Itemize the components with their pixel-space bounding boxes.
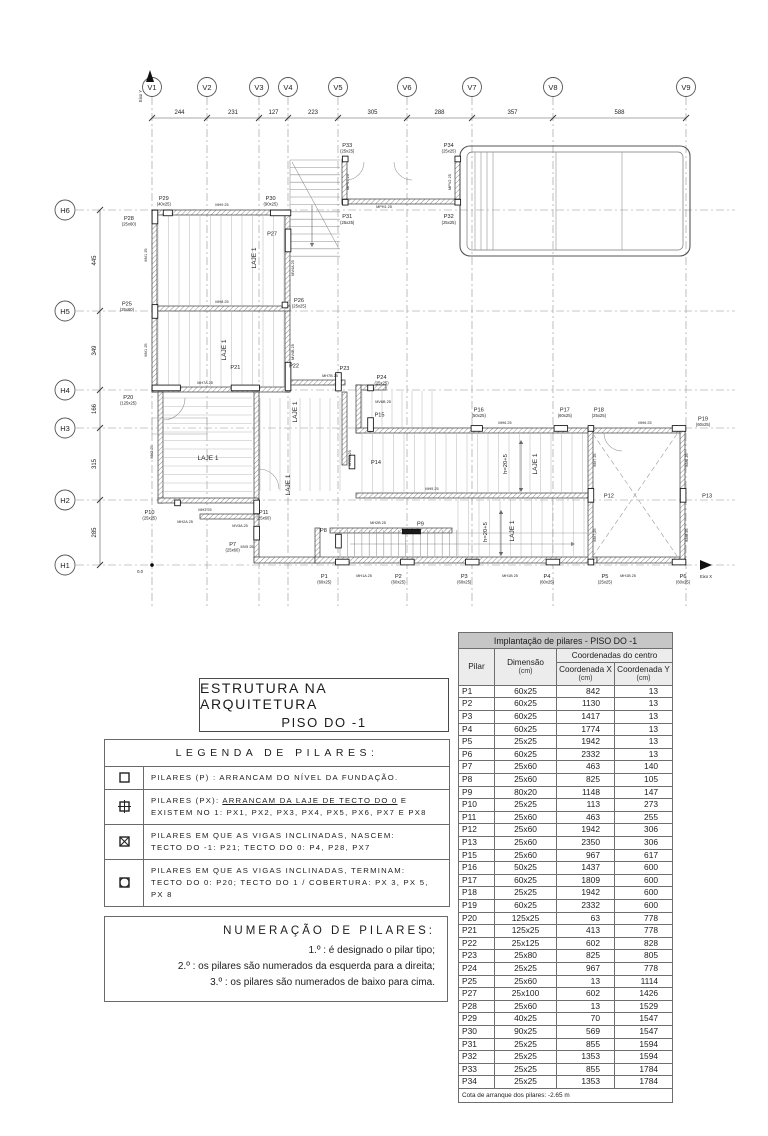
coord-y-cell: 140 bbox=[615, 761, 673, 774]
coord-y-cell: 13 bbox=[615, 698, 673, 711]
pillar-dim-label: (60x25) bbox=[317, 580, 332, 585]
square-circle-icon bbox=[105, 860, 144, 906]
coord-x-cell: 1130 bbox=[557, 698, 615, 711]
eixo-x-label: Eixo X bbox=[700, 574, 712, 579]
dim-cell: 60x25 bbox=[495, 723, 557, 736]
wall-label: MV7 25 bbox=[593, 528, 597, 541]
pillar-label: P22 bbox=[289, 364, 299, 370]
coord-y-cell: 778 bbox=[615, 912, 673, 925]
dim-cell: 25x25 bbox=[495, 1038, 557, 1051]
coord-y-cell: 778 bbox=[615, 925, 673, 938]
pillar-dim-label: (25x25) bbox=[598, 580, 613, 585]
col-header-x: Coordenada X (cm) bbox=[557, 663, 615, 685]
eixo-x-arrow-icon bbox=[700, 560, 712, 570]
pillar-table-container: Implantação de pilares - PISO DO -1 Pila… bbox=[458, 632, 673, 1103]
coord-y-cell: 13 bbox=[615, 685, 673, 698]
table-row: P3425x2513531784 bbox=[459, 1076, 673, 1089]
grid-bubble-V4: V4 bbox=[283, 83, 292, 92]
dim-left: 315 bbox=[92, 458, 98, 469]
pillar-label: P27 bbox=[267, 231, 277, 237]
dim-cell: 25x60 bbox=[495, 975, 557, 988]
coord-x-cell: 569 bbox=[557, 1025, 615, 1038]
pillar-P34: P34(25x25) bbox=[442, 143, 461, 162]
dim-cell: 125x25 bbox=[495, 912, 557, 925]
dim-top: 305 bbox=[367, 110, 378, 116]
dim-cell: 25x25 bbox=[495, 736, 557, 749]
col-header-pilar: Pilar bbox=[459, 649, 495, 686]
dim-cell: 60x25 bbox=[495, 698, 557, 711]
wall-label: MV4B 25 bbox=[291, 344, 295, 360]
table-row: P1525x60967617 bbox=[459, 849, 673, 862]
pillar-legend: LEGENDA DE PILARES: PILARES (P) : ARRANC… bbox=[104, 739, 450, 907]
pillar-P20: P20(125x25) bbox=[120, 385, 180, 405]
pilar-cell: P22 bbox=[459, 937, 495, 950]
coord-x-cell: 967 bbox=[557, 962, 615, 975]
table-row: P460x25177413 bbox=[459, 723, 673, 736]
eixo-y-label: Eixo Y bbox=[138, 90, 143, 102]
grid-bubble-V8: V8 bbox=[548, 83, 557, 92]
pillar-dim-label: (25x25) bbox=[340, 149, 355, 154]
numbering-rule-1: 1.º : é designado o pilar tipo; bbox=[117, 943, 435, 959]
pilar-cell: P11 bbox=[459, 811, 495, 824]
numbering-rule-3: 3.º : os pilares são numerados de baixo … bbox=[117, 975, 435, 991]
dim-cell: 90x25 bbox=[495, 1025, 557, 1038]
dim-cell: 60x25 bbox=[495, 685, 557, 698]
dim-left: 285 bbox=[92, 527, 98, 538]
dim-left: 349 bbox=[92, 345, 98, 356]
dim-cell: 25x60 bbox=[495, 761, 557, 774]
col-header-y-unit: (cm) bbox=[615, 675, 672, 683]
dim-top: 231 bbox=[228, 110, 239, 116]
pilar-cell: P16 bbox=[459, 862, 495, 875]
table-footer-note: Cota de arranque dos pilares: -2.65 m bbox=[459, 1088, 673, 1103]
table-row: P3225x2513531594 bbox=[459, 1051, 673, 1064]
pillar-dim-label: (125x25) bbox=[120, 401, 137, 406]
pillar-dim-label: (25x60) bbox=[257, 516, 272, 521]
dim-cell: 25x25 bbox=[495, 1076, 557, 1089]
pilar-cell: P6 bbox=[459, 748, 495, 761]
table-row: P825x60825105 bbox=[459, 774, 673, 787]
coord-y-cell: 600 bbox=[615, 862, 673, 875]
drawing-sheet: V1V2V3V4V5V6V7V8V9H6H5H4H3H2H1 244231127… bbox=[0, 0, 768, 1136]
dim-cell: 60x25 bbox=[495, 899, 557, 912]
grid-bubble-V7: V7 bbox=[467, 83, 476, 92]
table-row: P3325x258551784 bbox=[459, 1063, 673, 1076]
col-header-dim-label: Dimensão bbox=[495, 658, 556, 667]
wall-label: MPV2 25 bbox=[448, 174, 452, 190]
coord-x-cell: 602 bbox=[557, 937, 615, 950]
wall-label: MV8 25 bbox=[685, 528, 689, 541]
dim-cell: 25x100 bbox=[495, 988, 557, 1001]
coord-x-cell: 1148 bbox=[557, 786, 615, 799]
pilar-cell: P23 bbox=[459, 950, 495, 963]
drawing-title-line2: PISO DO -1 bbox=[281, 715, 366, 730]
pilar-cell: P3 bbox=[459, 711, 495, 724]
pilar-cell: P13 bbox=[459, 837, 495, 850]
pilar-cell: P20 bbox=[459, 912, 495, 925]
table-row: P1325x602350306 bbox=[459, 837, 673, 850]
dim-cell: 25x25 bbox=[495, 887, 557, 900]
table-row: P525x25194213 bbox=[459, 736, 673, 749]
wall-label: MH3 25 bbox=[198, 508, 211, 512]
pillar-label: P13 bbox=[702, 493, 712, 499]
drawing-title-line1: ESTRUTURA NA ARQUITETURA bbox=[200, 680, 448, 712]
coord-x-cell: 63 bbox=[557, 912, 615, 925]
dim-cell: 25x60 bbox=[495, 774, 557, 787]
pillar-dim-label: (25x25) bbox=[442, 220, 457, 225]
pilar-cell: P25 bbox=[459, 975, 495, 988]
coord-x-cell: 1417 bbox=[557, 711, 615, 724]
pillar-P19: P19(60x25) bbox=[672, 416, 710, 431]
coord-y-cell: 1594 bbox=[615, 1051, 673, 1064]
wall-label: MH1B 25 bbox=[620, 574, 636, 578]
col-header-dimensao: Dimensão (cm) bbox=[495, 649, 557, 686]
square-icon bbox=[105, 767, 144, 789]
table-row: P2325x80825805 bbox=[459, 950, 673, 963]
table-row: P1025x25113273 bbox=[459, 799, 673, 812]
dim-cell: 25x60 bbox=[495, 824, 557, 837]
col-header-y-label: Coordenada Y bbox=[615, 665, 672, 674]
pillar-P33: P33(25x25) bbox=[340, 143, 355, 162]
legend-item-text: PILARES EM QUE AS VIGAS INCLINADAS, NASC… bbox=[144, 825, 449, 859]
coord-y-cell: 13 bbox=[615, 723, 673, 736]
dim-cell: 50x25 bbox=[495, 862, 557, 875]
wall-label: MPV1 25 bbox=[346, 174, 350, 190]
wall-label: MH5 25 bbox=[425, 487, 438, 491]
pilar-cell: P32 bbox=[459, 1051, 495, 1064]
wall-label: MH2B 25 bbox=[370, 521, 386, 525]
wall-label: MV8 25 bbox=[685, 453, 689, 466]
pilar-cell: P18 bbox=[459, 887, 495, 900]
pillar-dim-label: (60x25) bbox=[457, 580, 472, 585]
coord-y-cell: 105 bbox=[615, 774, 673, 787]
pilar-cell: P2 bbox=[459, 698, 495, 711]
table-row: P2225x125602828 bbox=[459, 937, 673, 950]
coord-x-cell: 2350 bbox=[557, 837, 615, 850]
pillar-numbering-notes: NUMERAÇÃO DE PILARES: 1.º : é designado … bbox=[104, 916, 448, 1002]
legend-item-inclined-end: PILARES EM QUE AS VIGAS INCLINADAS, TERM… bbox=[105, 860, 449, 906]
coord-x-cell: 1942 bbox=[557, 887, 615, 900]
grid-bubble-H3: H3 bbox=[60, 424, 70, 433]
coord-y-cell: 1529 bbox=[615, 1000, 673, 1013]
grid-bubble-V1: V1 bbox=[147, 83, 156, 92]
grid-bubble-H1: H1 bbox=[60, 561, 70, 570]
dim-top: 357 bbox=[507, 110, 518, 116]
pilar-cell: P8 bbox=[459, 774, 495, 787]
dim-cell: 25x125 bbox=[495, 937, 557, 950]
pillar-dim-label: (60x25) bbox=[696, 422, 711, 427]
table-row: P980x201148147 bbox=[459, 786, 673, 799]
pillar-dim-label: (60x25) bbox=[391, 580, 406, 585]
grid-bubble-V5: V5 bbox=[333, 83, 342, 92]
pillar-dim-label: (25x25) bbox=[340, 220, 355, 225]
walls-and-fixtures bbox=[152, 146, 690, 563]
pilar-cell: P31 bbox=[459, 1038, 495, 1051]
pillar-dim-label: (90x25) bbox=[263, 202, 278, 207]
coord-y-cell: 1547 bbox=[615, 1013, 673, 1026]
coord-x-cell: 413 bbox=[557, 925, 615, 938]
wall-label: MV4A 25 bbox=[291, 260, 295, 275]
coord-x-cell: 1437 bbox=[557, 862, 615, 875]
grid-bubble-V2: V2 bbox=[202, 83, 211, 92]
pillar-dim-label: (40x25) bbox=[157, 202, 172, 207]
wall-label: MH8 25 bbox=[215, 300, 228, 304]
coord-y-cell: 600 bbox=[615, 874, 673, 887]
dim-cell: 80x20 bbox=[495, 786, 557, 799]
coord-y-cell: 273 bbox=[615, 799, 673, 812]
legend-item-text: PILARES (PX): ARRANCAM DA LAJE DE TECTO … bbox=[144, 790, 449, 824]
wall-label: MH1A 25 bbox=[356, 574, 372, 578]
table-row: P1650x251437600 bbox=[459, 862, 673, 875]
coord-x-cell: 1942 bbox=[557, 824, 615, 837]
coord-y-cell: 13 bbox=[615, 736, 673, 749]
pilar-cell: P27 bbox=[459, 988, 495, 1001]
coord-x-cell: 855 bbox=[557, 1063, 615, 1076]
pillar-label: P9 bbox=[417, 522, 424, 528]
pillar-label: P8 bbox=[320, 528, 327, 534]
dim-left: 445 bbox=[92, 255, 98, 266]
table-title: Implantação de pilares - PISO DO -1 bbox=[459, 633, 673, 649]
pilar-cell: P19 bbox=[459, 899, 495, 912]
dim-cell: 25x25 bbox=[495, 799, 557, 812]
coord-x-cell: 1774 bbox=[557, 723, 615, 736]
pillar-dim-label: (50x25) bbox=[472, 413, 487, 418]
pillar-dim-label: (60x25) bbox=[558, 413, 573, 418]
dim-cell: 25x80 bbox=[495, 950, 557, 963]
pillar-dim-label: (25x60) bbox=[120, 307, 135, 312]
room-label: LAJE 1 bbox=[198, 455, 219, 462]
table-row: P1225x601942306 bbox=[459, 824, 673, 837]
legend-item-px: PILARES (PX): ARRANCAM DA LAJE DE TECTO … bbox=[105, 790, 449, 825]
coord-x-cell: 463 bbox=[557, 811, 615, 824]
coord-y-cell: 600 bbox=[615, 899, 673, 912]
coord-x-cell: 602 bbox=[557, 988, 615, 1001]
table-row: P160x2584213 bbox=[459, 685, 673, 698]
pillar-P22: P22 bbox=[285, 362, 299, 390]
table-row: P1825x251942600 bbox=[459, 887, 673, 900]
pillar-dim-label: (25x25) bbox=[142, 515, 157, 520]
legend-item-inclined-start: PILARES EM QUE AS VIGAS INCLINADAS, NASC… bbox=[105, 825, 449, 860]
wall-label: MV7 25 bbox=[593, 453, 597, 466]
room-label: LAJE 1 bbox=[509, 520, 516, 541]
pillar-label: P15 bbox=[375, 413, 385, 419]
pillar-dim-label: (60x25) bbox=[540, 580, 555, 585]
pillar-label: P12 bbox=[604, 493, 614, 499]
dim-cell: 60x25 bbox=[495, 748, 557, 761]
dim-cell: 125x25 bbox=[495, 925, 557, 938]
pillar-P11: P11(25x60) bbox=[254, 500, 272, 520]
col-header-dim-unit: (cm) bbox=[495, 668, 556, 676]
pilar-cell: P10 bbox=[459, 799, 495, 812]
pillar-dim-label: (25x25) bbox=[592, 413, 607, 418]
wall-label: MH1B 25 bbox=[502, 574, 518, 578]
legend-header: LEGENDA DE PILARES: bbox=[105, 740, 449, 767]
grid-bubble-H4: H4 bbox=[60, 386, 70, 395]
floor-plan: V1V2V3V4V5V6V7V8V9H6H5H4H3H2H1 244231127… bbox=[0, 0, 768, 620]
pillar-dim-label: (25x25) bbox=[442, 149, 457, 154]
pilar-cell: P5 bbox=[459, 736, 495, 749]
pillar-table: Implantação de pilares - PISO DO -1 Pila… bbox=[458, 632, 673, 1103]
dim-top: 127 bbox=[268, 110, 279, 116]
room-label: LAJE 1 bbox=[221, 339, 228, 360]
coord-x-cell: 1942 bbox=[557, 736, 615, 749]
pillar-P23: P23 bbox=[336, 366, 350, 391]
legend-item-text: PILARES EM QUE AS VIGAS INCLINADAS, TERM… bbox=[144, 860, 449, 906]
square-cross-icon bbox=[105, 790, 144, 824]
dim-cell: 25x60 bbox=[495, 1000, 557, 1013]
table-row: P3090x255691547 bbox=[459, 1025, 673, 1038]
room-label: h=20+5 bbox=[503, 454, 509, 474]
col-header-x-unit: (cm) bbox=[557, 675, 614, 683]
pillar-P14: P14 bbox=[349, 455, 381, 469]
coord-y-cell: 1426 bbox=[615, 988, 673, 1001]
coord-x-cell: 825 bbox=[557, 774, 615, 787]
wall-label: MV1 25 bbox=[144, 248, 148, 261]
pillar-dim-label: (25x60) bbox=[226, 548, 241, 553]
numbering-header: NUMERAÇÃO DE PILARES: bbox=[117, 925, 435, 937]
dim-top: 588 bbox=[614, 110, 625, 116]
grid-bubble-H6: H6 bbox=[60, 206, 70, 215]
pilar-cell: P29 bbox=[459, 1013, 495, 1026]
room-label: LAJE 1 bbox=[532, 453, 539, 474]
coord-x-cell: 463 bbox=[557, 761, 615, 774]
wall-label: MV6A 25 bbox=[348, 450, 352, 465]
pilar-cell: P1 bbox=[459, 685, 495, 698]
wall-label: MH6 25 bbox=[498, 421, 511, 425]
wall-label: MV5 25 bbox=[240, 545, 253, 549]
origin-point bbox=[150, 563, 154, 567]
table-row: P2525x60131114 bbox=[459, 975, 673, 988]
dim-cell: 60x25 bbox=[495, 711, 557, 724]
coord-y-cell: 600 bbox=[615, 887, 673, 900]
coord-x-cell: 70 bbox=[557, 1013, 615, 1026]
coord-y-cell: 1547 bbox=[615, 1025, 673, 1038]
coord-x-cell: 825 bbox=[557, 950, 615, 963]
dim-top: 244 bbox=[174, 110, 185, 116]
table-row: P21125x25413778 bbox=[459, 925, 673, 938]
coord-y-cell: 778 bbox=[615, 962, 673, 975]
wall-label: MV2 25 bbox=[150, 445, 154, 458]
pilar-cell: P28 bbox=[459, 1000, 495, 1013]
pilar-cell: P30 bbox=[459, 1025, 495, 1038]
room-label: LAJE 1 bbox=[251, 247, 258, 268]
pillar-dim-label: (25x60) bbox=[122, 222, 137, 227]
dim-cell: 40x25 bbox=[495, 1013, 557, 1026]
numbering-rule-2: 2.º : os pilares são numerados da esquer… bbox=[117, 959, 435, 975]
wall-label: MH7A 25 bbox=[197, 381, 213, 385]
coord-y-cell: 617 bbox=[615, 849, 673, 862]
coord-y-cell: 147 bbox=[615, 786, 673, 799]
coord-y-cell: 13 bbox=[615, 711, 673, 724]
coord-y-cell: 255 bbox=[615, 811, 673, 824]
room-label: LAJE 1 bbox=[292, 401, 299, 422]
drawing-title-block: ESTRUTURA NA ARQUITETURA PISO DO -1 bbox=[199, 678, 449, 732]
origin-label: 0.0 bbox=[137, 569, 143, 574]
coord-x-cell: 855 bbox=[557, 1038, 615, 1051]
wall-label: MV1 25 bbox=[144, 343, 148, 356]
coord-x-cell: 1353 bbox=[557, 1076, 615, 1089]
table-row: P1125x60463255 bbox=[459, 811, 673, 824]
coord-y-cell: 1594 bbox=[615, 1038, 673, 1051]
table-row: P725x60463140 bbox=[459, 761, 673, 774]
room-label: h=20+5 bbox=[483, 522, 489, 542]
coord-x-cell: 1809 bbox=[557, 874, 615, 887]
square-x-icon bbox=[105, 825, 144, 859]
pilar-cell: P21 bbox=[459, 925, 495, 938]
pillar-P21: P21 bbox=[230, 365, 259, 391]
dim-cell: 60x25 bbox=[495, 874, 557, 887]
wall-label: MV3A 25 bbox=[232, 524, 247, 528]
table-row: P1960x252332600 bbox=[459, 899, 673, 912]
pillar-label: P14 bbox=[371, 460, 381, 466]
room-label: LAJE 1 bbox=[285, 474, 292, 495]
eixo-y-arrow-icon bbox=[146, 70, 154, 82]
coord-x-cell: 842 bbox=[557, 685, 615, 698]
table-row: P660x25233213 bbox=[459, 748, 673, 761]
pillar-dim-label: (25x25) bbox=[374, 381, 389, 386]
col-header-coords: Coordenadas do centro bbox=[557, 649, 673, 663]
wall-label: MH7B 25 bbox=[322, 374, 338, 378]
dim-top: 288 bbox=[434, 110, 445, 116]
table-row: P3125x258551594 bbox=[459, 1038, 673, 1051]
pilar-cell: P33 bbox=[459, 1063, 495, 1076]
coord-x-cell: 967 bbox=[557, 849, 615, 862]
pillar-P6: P6(60x25) bbox=[672, 559, 690, 584]
legend-item-text: PILARES (P) : ARRANCAM DO NÍVEL DA FUNDA… bbox=[144, 767, 449, 789]
wall-label: MH2A 25 bbox=[177, 520, 193, 524]
dim-cell: 25x60 bbox=[495, 849, 557, 862]
table-row: P2940x25701547 bbox=[459, 1013, 673, 1026]
coord-x-cell: 2332 bbox=[557, 899, 615, 912]
pilar-cell: P15 bbox=[459, 849, 495, 862]
dim-cell: 25x60 bbox=[495, 837, 557, 850]
coord-x-cell: 1353 bbox=[557, 1051, 615, 1064]
pilar-cell: P9 bbox=[459, 786, 495, 799]
coord-y-cell: 1114 bbox=[615, 975, 673, 988]
wall-label: MV6B 25 bbox=[375, 400, 391, 404]
grid-bubble-V6: V6 bbox=[402, 83, 411, 92]
pillar-label: P21 bbox=[230, 365, 240, 371]
col-header-x-label: Coordenada X bbox=[557, 665, 614, 674]
pilar-cell: P17 bbox=[459, 874, 495, 887]
pillar-dim-label: (60x25) bbox=[676, 580, 691, 585]
coord-y-cell: 1784 bbox=[615, 1063, 673, 1076]
pilar-cell: P7 bbox=[459, 761, 495, 774]
pilar-cell: P24 bbox=[459, 962, 495, 975]
wall-label: MH9 25 bbox=[215, 203, 228, 207]
coord-y-cell: 306 bbox=[615, 824, 673, 837]
coord-y-cell: 306 bbox=[615, 837, 673, 850]
pilar-cell: P4 bbox=[459, 723, 495, 736]
coord-y-cell: 805 bbox=[615, 950, 673, 963]
wall-label: MH6 25 bbox=[638, 421, 651, 425]
legend-item-foundation: PILARES (P) : ARRANCAM DO NÍVEL DA FUNDA… bbox=[105, 767, 449, 790]
table-row: P2725x1006021426 bbox=[459, 988, 673, 1001]
table-row: P2425x25967778 bbox=[459, 962, 673, 975]
grid-bubble-V3: V3 bbox=[254, 83, 263, 92]
coord-y-cell: 828 bbox=[615, 937, 673, 950]
pillar-dim-label: (25x25) bbox=[292, 304, 307, 309]
pilar-cell: P12 bbox=[459, 824, 495, 837]
coord-y-cell: 13 bbox=[615, 748, 673, 761]
table-row: P260x25113013 bbox=[459, 698, 673, 711]
dim-left: 166 bbox=[92, 403, 98, 414]
pillar-P28: P28(25x60) bbox=[122, 210, 158, 226]
coord-x-cell: 2332 bbox=[557, 748, 615, 761]
grid-bubble-H5: H5 bbox=[60, 307, 70, 316]
pilar-cell: P34 bbox=[459, 1076, 495, 1089]
col-header-y: Coordenada Y (cm) bbox=[615, 663, 673, 685]
